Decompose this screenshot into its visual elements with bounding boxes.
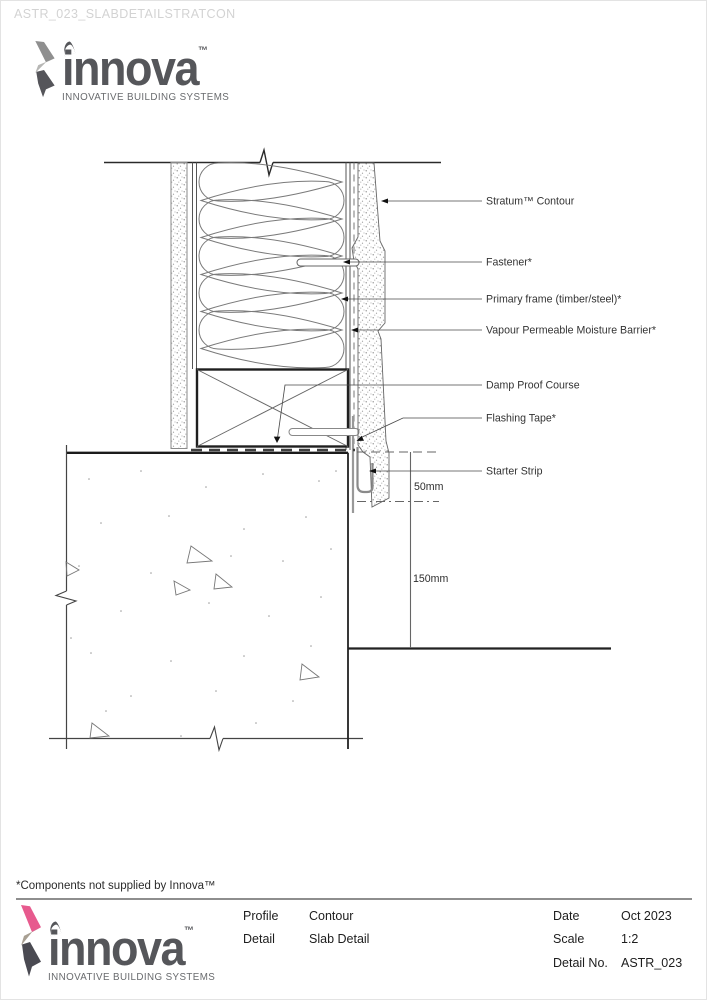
arrow-primary-frame	[341, 297, 348, 302]
label-flashing-tape: Flashing Tape*	[486, 413, 556, 425]
tb-profile-label: Profile	[243, 909, 278, 923]
tb-detailno-label: Detail No.	[553, 956, 608, 970]
tb-date-label: Date	[553, 909, 579, 923]
interior-lining	[171, 163, 187, 449]
label-starter-strip: Starter Strip	[486, 466, 543, 478]
logo-wordmark: innova™	[48, 927, 215, 967]
flashing-tape-lap	[289, 429, 359, 436]
label-dpc: Damp Proof Course	[486, 380, 580, 392]
wall-section	[104, 150, 441, 513]
tb-detail-value: Slab Detail	[309, 932, 369, 946]
tb-date-value: Oct 2023	[621, 909, 672, 923]
slab-detail-drawing: 50mm 150mm Stratum™ Contour Fastener* Pr…	[1, 1, 706, 871]
label-stratum: Stratum™ Contour	[486, 196, 575, 208]
mark-bottom-segment	[22, 942, 41, 977]
arrow-stratum	[381, 199, 388, 204]
mark-mid-segment	[21, 927, 41, 946]
tb-scale-value: 1:2	[621, 932, 638, 946]
innova-logo-footer: innova™ INNOVATIVE BUILDING SYSTEMS	[17, 905, 215, 983]
footer-divider	[16, 898, 692, 900]
slab-left-break-symbol	[56, 591, 76, 605]
innova-mark-icon	[17, 905, 43, 979]
logo-tm: ™	[184, 925, 194, 937]
label-fastener: Fastener*	[486, 257, 532, 269]
dim-50mm: 50mm	[414, 481, 444, 493]
tb-scale-label: Scale	[553, 932, 584, 946]
concrete-texture	[66, 470, 337, 738]
tb-detail-label: Detail	[243, 932, 275, 946]
concrete-slab	[49, 445, 611, 750]
label-primary-frame: Primary frame (timber/steel)*	[486, 294, 621, 306]
top-break-symbol	[260, 150, 273, 175]
components-footnote: *Components not supplied by Innova™	[16, 880, 215, 892]
mark-top-segment	[21, 905, 41, 932]
tb-profile-value: Contour	[309, 909, 353, 923]
dim-150mm: 150mm	[413, 573, 448, 585]
label-vapour-barrier: Vapour Permeable Moisture Barrier*	[486, 325, 656, 337]
drawing-sheet: ASTR_023_SLABDETAILSTRATCON innova™ INNO…	[0, 0, 707, 1000]
tb-detailno-value: ASTR_023	[621, 956, 682, 970]
slab-bottom-break-symbol	[210, 727, 223, 750]
